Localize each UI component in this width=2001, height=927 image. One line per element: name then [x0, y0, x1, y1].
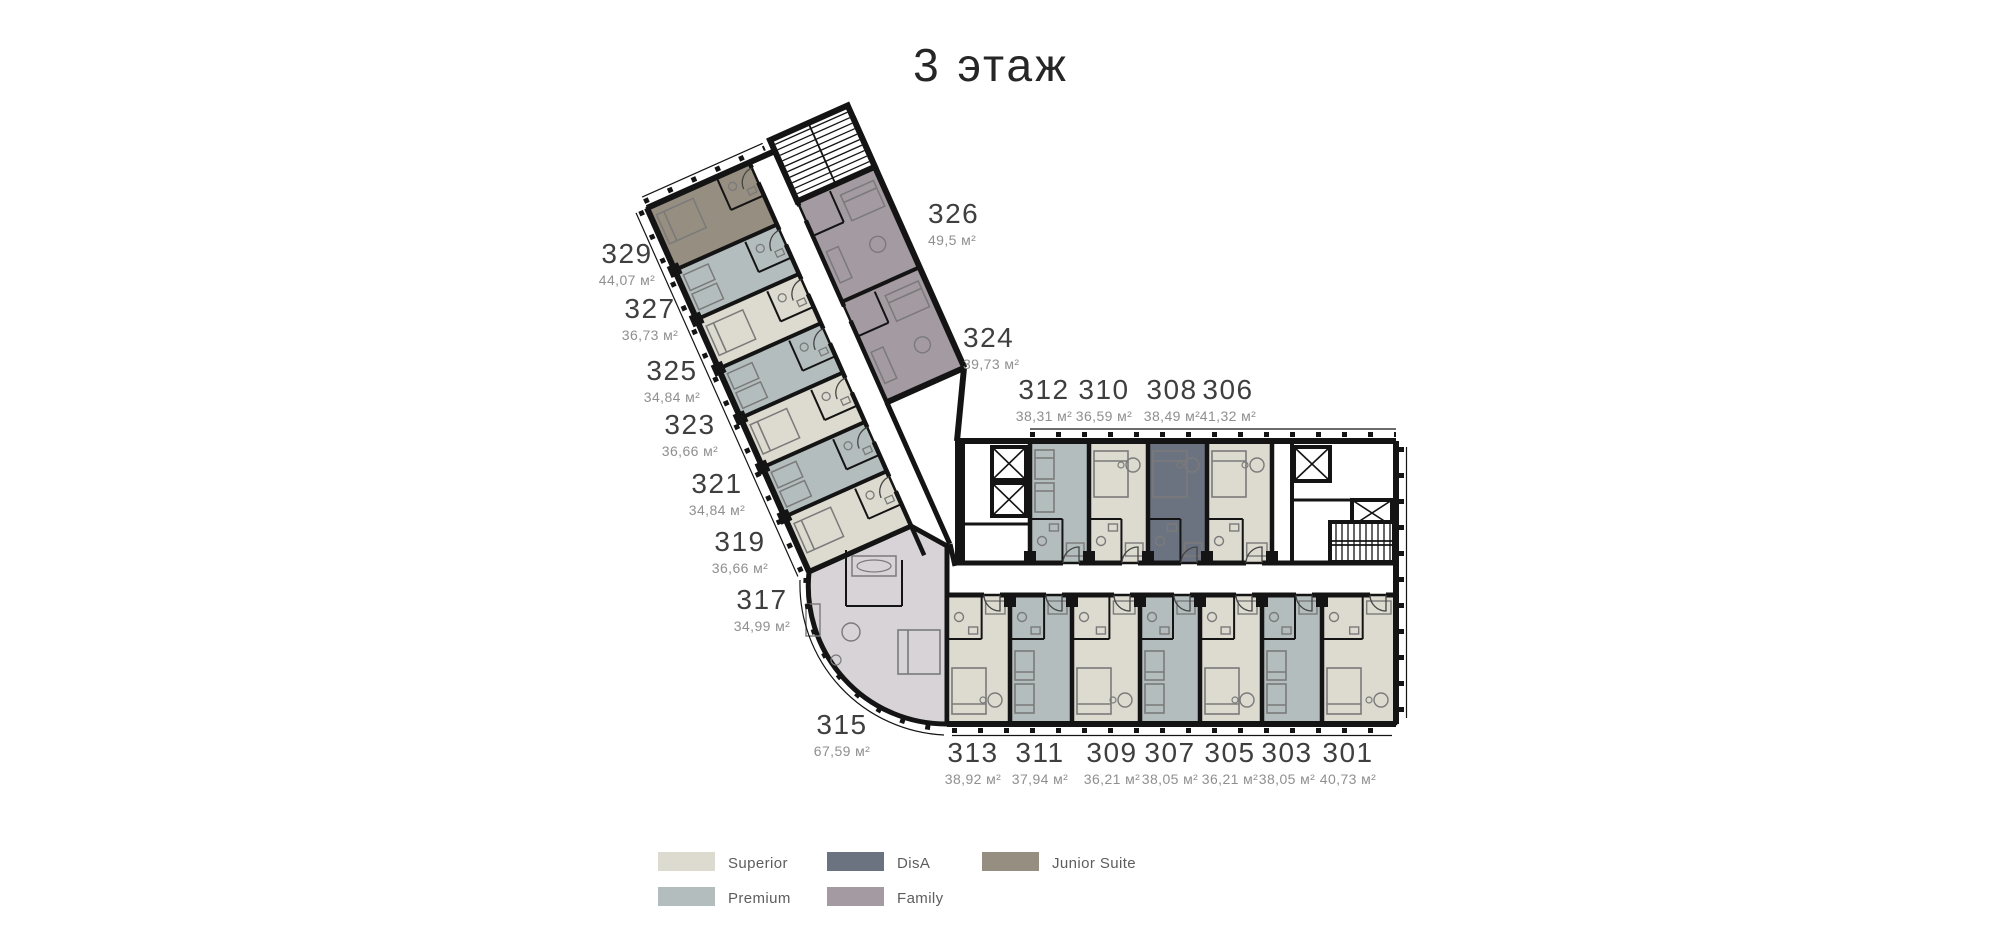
room-number[interactable]: 303 — [1259, 739, 1315, 767]
room-area: 49,5 м² — [928, 232, 979, 248]
room-label-327: 327 36,73 м² — [622, 295, 678, 343]
room-label-323: 323 36,66 м² — [662, 411, 718, 459]
legend-label-superior: Superior — [728, 855, 788, 872]
room-number[interactable]: 306 — [1200, 376, 1256, 404]
legend-swatch-junior-suite — [982, 852, 1039, 871]
room-area: 36,66 м² — [712, 560, 768, 576]
room-label-319: 319 36,66 м² — [712, 528, 768, 576]
room-number[interactable]: 301 — [1320, 739, 1376, 767]
room-305[interactable] — [1200, 595, 1262, 724]
room-306[interactable] — [1207, 441, 1272, 563]
room-311[interactable] — [1010, 595, 1072, 724]
room-label-321: 321 34,84 м² — [689, 470, 745, 518]
room-number[interactable]: 312 — [1016, 376, 1072, 404]
room-label-305: 305 36,21 м² — [1202, 739, 1258, 787]
room-number[interactable]: 327 — [622, 295, 678, 323]
floor-plan — [0, 0, 2001, 927]
room-area: 34,84 м² — [644, 389, 700, 405]
room-area: 37,94 м² — [1012, 771, 1068, 787]
room-number[interactable]: 317 — [734, 586, 790, 614]
room-label-325: 325 34,84 м² — [644, 357, 700, 405]
room-area: 38,05 м² — [1142, 771, 1198, 787]
room-label-311: 311 37,94 м² — [1012, 739, 1068, 787]
room-area: 38,49 м² — [1144, 408, 1200, 424]
room-number[interactable]: 309 — [1084, 739, 1140, 767]
room-313[interactable] — [947, 595, 1010, 724]
room-number[interactable]: 305 — [1202, 739, 1258, 767]
floorplan-page: 3 этаж 329 44,07 м² 327 36,73 м² 325 34,… — [0, 0, 2001, 927]
room-area: 41,32 м² — [1200, 408, 1256, 424]
room-label-309: 309 36,21 м² — [1084, 739, 1140, 787]
room-area: 38,92 м² — [945, 771, 1001, 787]
room-area: 36,73 м² — [622, 327, 678, 343]
legend-swatch-family — [827, 887, 884, 906]
room-number[interactable]: 319 — [712, 528, 768, 556]
room-number[interactable]: 307 — [1142, 739, 1198, 767]
room-area: 67,59 м² — [814, 743, 870, 759]
legend-label-disa: DisA — [897, 855, 930, 872]
room-number[interactable]: 315 — [814, 711, 870, 739]
room-312[interactable] — [1030, 441, 1089, 563]
room-label-303: 303 38,05 м² — [1259, 739, 1315, 787]
room-label-312: 312 38,31 м² — [1016, 376, 1072, 424]
room-area: 40,73 м² — [1320, 771, 1376, 787]
room-area: 34,99 м² — [734, 618, 790, 634]
room-label-301: 301 40,73 м² — [1320, 739, 1376, 787]
room-307[interactable] — [1140, 595, 1200, 724]
room-number[interactable]: 313 — [945, 739, 1001, 767]
room-area: 34,84 м² — [689, 502, 745, 518]
room-area: 36,59 м² — [1076, 408, 1132, 424]
legend-label-junior-suite: Junior Suite — [1052, 855, 1136, 872]
room-number[interactable]: 311 — [1012, 739, 1068, 767]
legend-label-family: Family — [897, 890, 944, 907]
legend-swatch-superior — [658, 852, 715, 871]
room-label-308: 308 38,49 м² — [1144, 376, 1200, 424]
room-number[interactable]: 323 — [662, 411, 718, 439]
room-area: 39,73 м² — [963, 356, 1019, 372]
room-label-329: 329 44,07 м² — [599, 240, 655, 288]
room-301[interactable] — [1322, 595, 1396, 724]
room-308[interactable] — [1148, 441, 1207, 563]
room-label-306: 306 41,32 м² — [1200, 376, 1256, 424]
room-label-307: 307 38,05 м² — [1142, 739, 1198, 787]
room-label-326: 326 49,5 м² — [928, 200, 979, 248]
room-label-313: 313 38,92 м² — [945, 739, 1001, 787]
room-area: 44,07 м² — [599, 272, 655, 288]
room-number[interactable]: 310 — [1076, 376, 1132, 404]
room-number[interactable]: 329 — [599, 240, 655, 268]
room-label-310: 310 36,59 м² — [1076, 376, 1132, 424]
room-309[interactable] — [1072, 595, 1140, 724]
room-number[interactable]: 324 — [963, 324, 1019, 352]
room-number[interactable]: 321 — [689, 470, 745, 498]
room-label-324: 324 39,73 м² — [963, 324, 1019, 372]
room-number[interactable]: 326 — [928, 200, 979, 228]
legend-label-premium: Premium — [728, 890, 791, 907]
room-area: 36,66 м² — [662, 443, 718, 459]
room-303[interactable] — [1262, 595, 1322, 724]
room-area: 36,21 м² — [1084, 771, 1140, 787]
room-label-315: 315 67,59 м² — [814, 711, 870, 759]
room-label-317: 317 34,99 м² — [734, 586, 790, 634]
room-310[interactable] — [1089, 441, 1148, 563]
room-area: 36,21 м² — [1202, 771, 1258, 787]
room-number[interactable]: 308 — [1144, 376, 1200, 404]
room-area: 38,31 м² — [1016, 408, 1072, 424]
room-area: 38,05 м² — [1259, 771, 1315, 787]
legend-swatch-disa — [827, 852, 884, 871]
room-number[interactable]: 325 — [644, 357, 700, 385]
legend-swatch-premium — [658, 887, 715, 906]
